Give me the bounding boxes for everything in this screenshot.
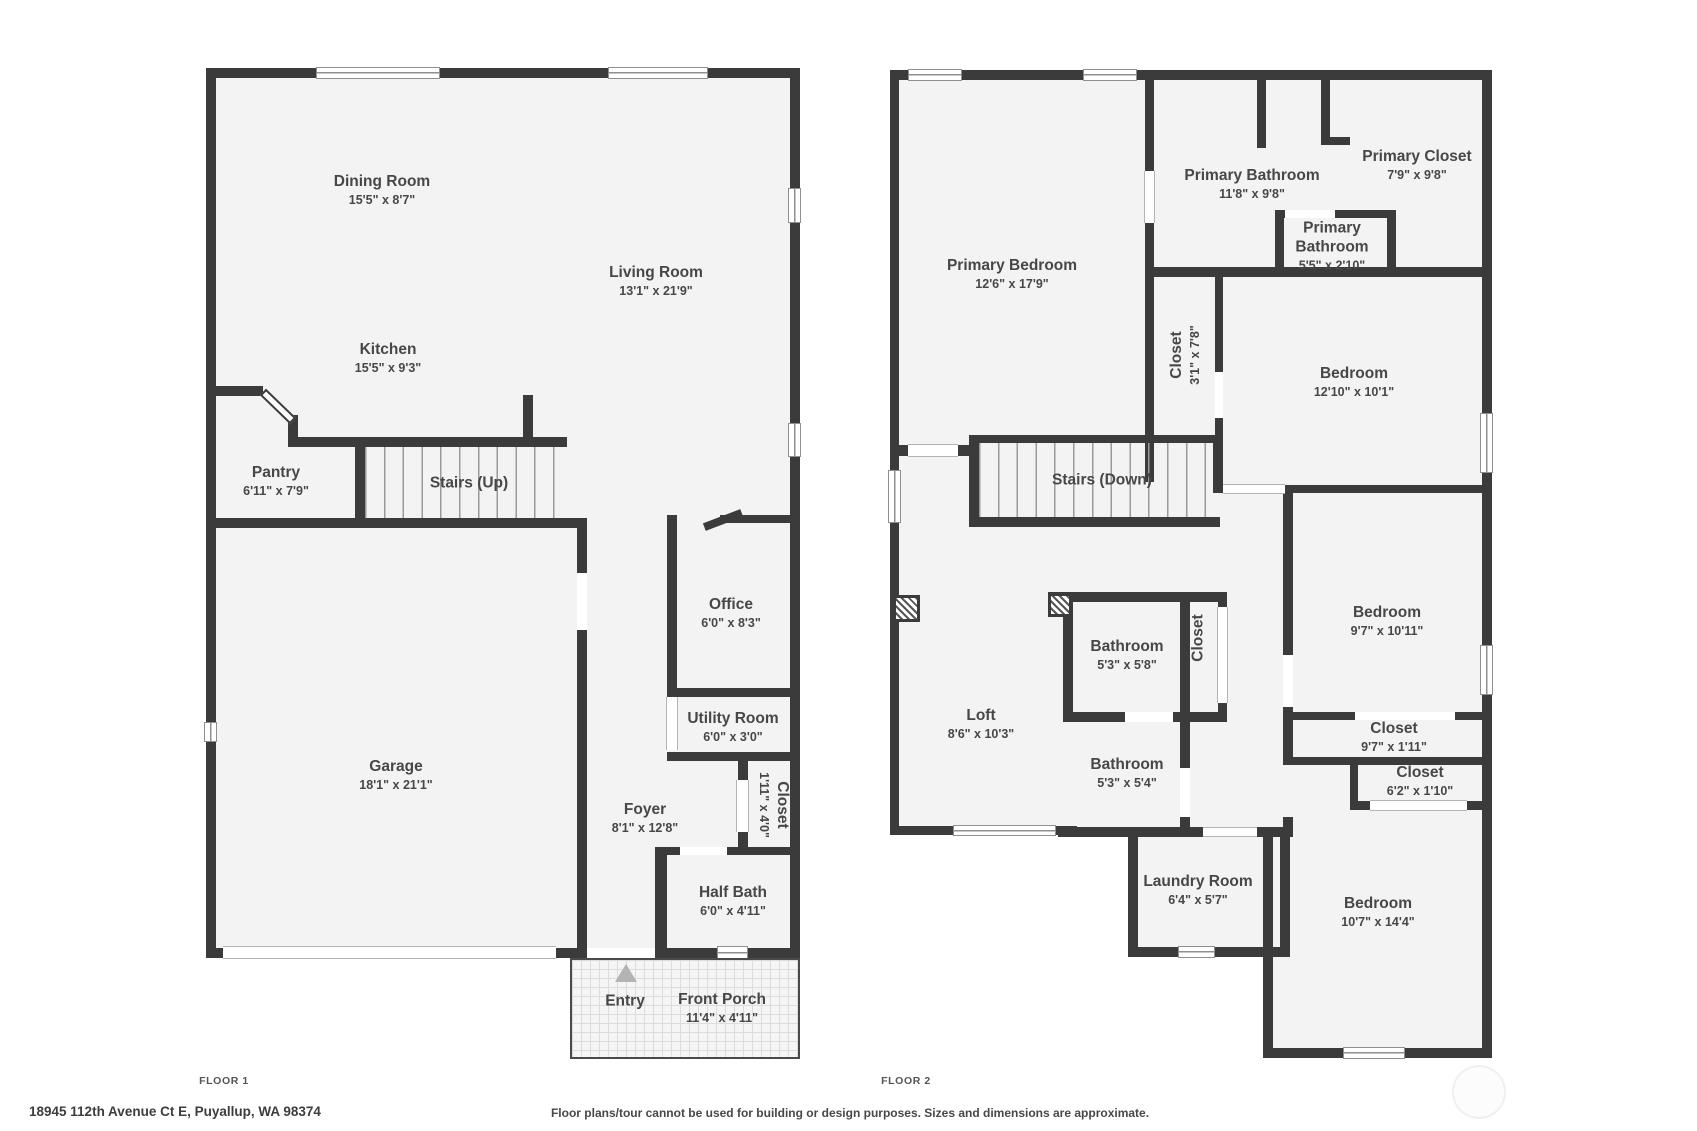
room-name: Laundry Room xyxy=(1143,872,1252,891)
room-name: Loft xyxy=(948,706,1014,725)
wall xyxy=(655,847,667,948)
wall xyxy=(1280,828,1290,957)
door-opening xyxy=(1223,484,1285,494)
room-dimensions: 15'5" x 8'7" xyxy=(334,192,430,208)
window xyxy=(316,67,440,79)
floor-plan-canvas: Dining Room15'5" x 8'7"Living Room13'1" … xyxy=(0,0,1697,1131)
door-gap xyxy=(1283,655,1293,707)
room-name: Bathroom xyxy=(1090,755,1163,774)
floor2-room-label-bedroom-2: Bedroom12'10" x 10'1" xyxy=(1314,364,1394,400)
room-dimensions: 5'3" x 5'8" xyxy=(1090,657,1163,673)
wall xyxy=(355,447,365,518)
entry-arrow-icon xyxy=(615,964,637,982)
wall xyxy=(1213,435,1223,493)
room-name: Primary Closet xyxy=(1362,147,1471,166)
floor1-room-label-stairs-up: Stairs (Up) xyxy=(430,474,508,493)
floor-area xyxy=(1273,835,1492,1058)
room-dimensions: 9'7" x 10'11" xyxy=(1351,623,1424,639)
wall xyxy=(1350,801,1370,810)
door-opening xyxy=(1217,607,1228,703)
floor2-room-label-primary-closet: Primary Closet7'9" x 9'8" xyxy=(1362,147,1471,183)
wall xyxy=(1173,712,1227,722)
floor1-room-label-closet-foyer: Closet1'11" x 4'0" xyxy=(756,772,792,838)
room-dimensions: 15'5" x 9'3" xyxy=(355,360,421,376)
room-name: Dining Room xyxy=(334,172,430,191)
wall xyxy=(969,517,1220,527)
floor2-label: FLOOR 2 xyxy=(881,1075,931,1087)
door-gap xyxy=(1125,712,1173,722)
floor2-room-label-bedroom-4: Bedroom10'7" x 14'4" xyxy=(1341,894,1414,930)
wall xyxy=(1048,592,1227,602)
wall xyxy=(206,68,800,78)
room-name: Closet xyxy=(1387,763,1453,782)
wall xyxy=(1283,817,1293,837)
wall xyxy=(667,847,680,855)
floor2-room-label-closet-hall: Closet xyxy=(1189,614,1208,661)
window xyxy=(608,67,708,79)
room-name: Front Porch xyxy=(678,990,766,1009)
window xyxy=(1343,1047,1405,1059)
room-name: Closet xyxy=(773,772,792,838)
structural-column-hatch xyxy=(1048,593,1072,617)
door-opening xyxy=(1203,827,1257,837)
room-name: Office xyxy=(701,595,761,614)
room-name: Stairs (Down) xyxy=(1052,471,1152,490)
room-name: Foyer xyxy=(612,800,678,819)
floor2-room-label-primary-bathroom-wc: Primary Bathroom5'5" x 2'10" xyxy=(1295,219,1368,274)
window xyxy=(788,423,801,457)
floor1-label: FLOOR 1 xyxy=(199,1075,249,1087)
floor2-room-label-closet-bedroom-4: Closet6'2" x 1'10" xyxy=(1387,763,1453,799)
floor1-room-label-front-porch: Front Porch11'4" x 4'11" xyxy=(678,990,766,1026)
room-name: Living Room xyxy=(609,263,703,282)
wall xyxy=(969,435,979,527)
floor1-room-label-kitchen: Kitchen15'5" x 9'3" xyxy=(355,340,421,376)
floor2-room-label-primary-bedroom: Primary Bedroom12'6" x 17'9" xyxy=(947,256,1077,292)
wall xyxy=(1263,837,1273,957)
floor1-room-label-utility-room: Utility Room6'0" x 3'0" xyxy=(687,709,778,745)
door-gap xyxy=(1215,372,1223,418)
room-dimensions: 18'1" x 21'1" xyxy=(359,777,432,793)
wall xyxy=(206,68,216,958)
wall xyxy=(1263,947,1273,1058)
floor1-room-label-garage: Garage18'1" x 21'1" xyxy=(359,757,432,793)
door-opening xyxy=(736,780,749,832)
wall xyxy=(1180,817,1190,832)
room-dimensions: 8'6" x 10'3" xyxy=(948,726,1014,742)
wall xyxy=(667,688,800,697)
room-dimensions: 5'5" x 2'10" xyxy=(1295,258,1368,274)
window xyxy=(1083,69,1137,81)
room-name: Stairs (Up) xyxy=(430,474,508,493)
room-name: Closet xyxy=(1189,614,1208,661)
window xyxy=(204,722,217,742)
room-name: Bathroom xyxy=(1090,637,1163,656)
room-name: Primary Bathroom xyxy=(1184,166,1319,185)
room-dimensions: 8'1" x 12'8" xyxy=(612,820,678,836)
floor1-room-label-half-bath: Half Bath6'0" x 4'11" xyxy=(699,883,767,919)
window xyxy=(788,188,801,223)
floor2-room-label-bathroom-2: Bathroom5'3" x 5'4" xyxy=(1090,755,1163,791)
wall xyxy=(890,70,1492,80)
floor1-room-label-entry: Entry xyxy=(605,992,645,1011)
window xyxy=(888,470,901,523)
floor2-room-label-closet-bedroom-3: Closet9'7" x 1'11" xyxy=(1361,719,1427,755)
room-name: Pantry xyxy=(243,463,309,482)
wall xyxy=(1145,80,1154,482)
room-name: Bedroom xyxy=(1351,603,1424,622)
room-name: Primary Bedroom xyxy=(947,256,1077,275)
window xyxy=(908,69,962,81)
room-dimensions: 10'7" x 14'4" xyxy=(1341,914,1414,930)
room-dimensions: 12'6" x 17'9" xyxy=(947,276,1077,292)
room-dimensions: 6'4" x 5'7" xyxy=(1143,892,1252,908)
wall xyxy=(969,435,1220,443)
room-dimensions: 11'4" x 4'11" xyxy=(678,1010,766,1026)
wall xyxy=(1128,830,1138,957)
room-dimensions: 9'7" x 1'11" xyxy=(1361,739,1427,755)
room-dimensions: 6'0" x 8'3" xyxy=(701,615,761,631)
wall xyxy=(1283,485,1492,493)
floor1-room-label-dining-room: Dining Room15'5" x 8'7" xyxy=(334,172,430,208)
floor1-room-label-living-room: Living Room13'1" x 21'9" xyxy=(609,263,703,299)
wall xyxy=(1257,80,1266,148)
room-dimensions: 6'0" x 4'11" xyxy=(699,903,767,919)
room-name: Half Bath xyxy=(699,883,767,902)
room-dimensions: 11'8" x 9'8" xyxy=(1184,186,1319,202)
room-dimensions: 5'3" x 5'4" xyxy=(1090,775,1163,791)
room-name: Bedroom xyxy=(1341,894,1414,913)
wall xyxy=(523,395,533,445)
property-address: 18945 112th Avenue Ct E, Puyallup, WA 98… xyxy=(29,1104,321,1119)
door-opening xyxy=(223,946,556,959)
wall xyxy=(1275,210,1284,275)
room-name: Kitchen xyxy=(355,340,421,359)
wall xyxy=(667,515,677,697)
room-dimensions: 6'0" x 3'0" xyxy=(687,729,778,745)
wall xyxy=(216,386,263,396)
floor2-room-label-loft: Loft8'6" x 10'3" xyxy=(948,706,1014,742)
wall xyxy=(1330,137,1350,145)
floor2-room-label-primary-bathroom: Primary Bathroom11'8" x 9'8" xyxy=(1184,166,1319,202)
room-name: Utility Room xyxy=(687,709,778,728)
door-opening xyxy=(1144,171,1155,223)
floor1-room-label-office: Office6'0" x 8'3" xyxy=(701,595,761,631)
wall xyxy=(1467,801,1492,810)
door-gap xyxy=(1180,768,1190,817)
floor1-room-label-foyer: Foyer8'1" x 12'8" xyxy=(612,800,678,836)
door-gap xyxy=(680,847,727,855)
structural-column-hatch xyxy=(893,595,920,622)
floor2-room-label-laundry-room: Laundry Room6'4" x 5'7" xyxy=(1143,872,1252,908)
floor2-room-label-bathroom-hall: Bathroom5'3" x 5'8" xyxy=(1090,637,1163,673)
window xyxy=(953,825,1056,836)
wall xyxy=(1275,210,1285,218)
room-name: Garage xyxy=(359,757,432,776)
door-gap xyxy=(1285,210,1335,218)
door-gap xyxy=(587,948,655,958)
floor2-room-label-closet-primary-bedroom: Closet3'1" x 7'8" xyxy=(1167,325,1203,385)
wall xyxy=(1283,712,1355,720)
wall xyxy=(1321,80,1330,145)
door-opening xyxy=(908,444,958,457)
room-dimensions: 3'1" x 7'8" xyxy=(1187,325,1203,385)
room-dimensions: 7'9" x 9'8" xyxy=(1362,167,1471,183)
room-name: Closet xyxy=(1167,325,1186,385)
door-opening xyxy=(1370,800,1467,811)
watermark-circle xyxy=(1452,1065,1506,1119)
floor2-room-label-bedroom-3: Bedroom9'7" x 10'11" xyxy=(1351,603,1424,639)
wall xyxy=(1218,703,1227,712)
wall xyxy=(1482,70,1492,1058)
room-dimensions: 1'11" x 4'0" xyxy=(756,772,772,838)
room-name: Bedroom xyxy=(1314,364,1394,383)
room-dimensions: 12'10" x 10'1" xyxy=(1314,384,1394,400)
disclaimer-text: Floor plans/tour cannot be used for buil… xyxy=(551,1106,1149,1120)
wall xyxy=(206,518,587,528)
window xyxy=(1480,645,1493,695)
wall xyxy=(727,847,800,855)
wall xyxy=(1455,712,1492,720)
window xyxy=(1480,413,1493,473)
room-dimensions: 6'11" x 7'9" xyxy=(243,483,309,499)
room-dimensions: 6'2" x 1'10" xyxy=(1387,783,1453,799)
floor1-room-label-pantry: Pantry6'11" x 7'9" xyxy=(243,463,309,499)
wall xyxy=(1180,722,1190,768)
window xyxy=(1178,946,1215,958)
room-name: Entry xyxy=(605,992,645,1011)
room-name: Primary Bathroom xyxy=(1295,219,1368,257)
room-name: Closet xyxy=(1361,719,1427,738)
wall xyxy=(1063,712,1125,722)
wall xyxy=(667,752,800,761)
door-opening xyxy=(666,697,678,750)
floor2-room-label-stairs-down: Stairs (Down) xyxy=(1052,471,1152,490)
door-gap xyxy=(577,573,587,630)
room-dimensions: 13'1" x 21'9" xyxy=(609,283,703,299)
wall xyxy=(1387,210,1396,275)
wall xyxy=(1283,485,1293,655)
